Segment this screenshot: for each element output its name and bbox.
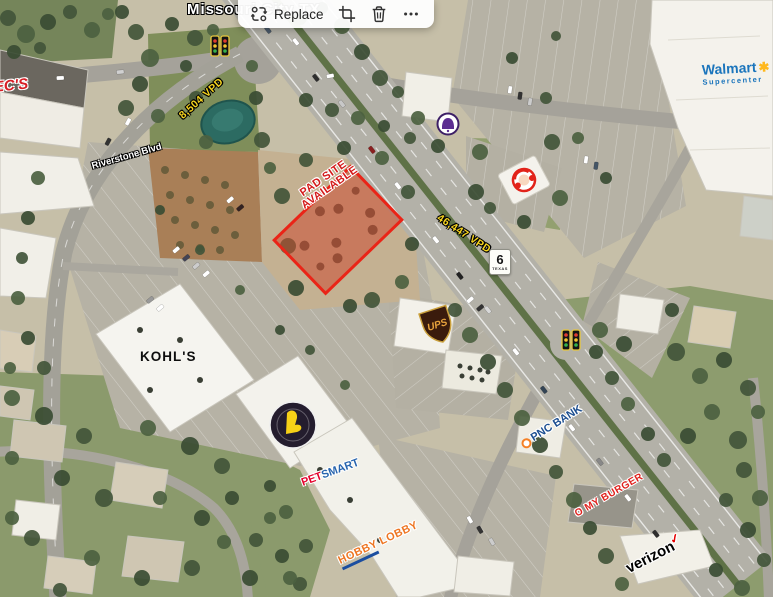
floating-image-toolbar: Replace xyxy=(238,0,434,28)
shield-state: TEXAS xyxy=(492,266,508,271)
crop-button[interactable] xyxy=(332,2,362,26)
more-options-button[interactable] xyxy=(396,2,426,26)
ellipsis-icon xyxy=(402,5,420,23)
planet-fitness-logo xyxy=(270,402,316,448)
taco-bell-logo xyxy=(438,114,459,135)
aerial-map-image[interactable]: UPS xyxy=(0,0,773,597)
aerial-map-graphic: UPS xyxy=(0,0,773,597)
walmart-logo: Walmart✱ Supercenter xyxy=(701,58,770,87)
swap-arrows-icon xyxy=(250,5,268,23)
walmart-spark-icon: ✱ xyxy=(758,59,770,75)
crop-icon xyxy=(338,5,356,23)
trash-icon xyxy=(370,5,388,23)
kohls-label: KOHL'S xyxy=(140,350,196,364)
shield-number: 6 xyxy=(496,253,503,266)
replace-label: Replace xyxy=(274,7,324,22)
delete-button[interactable] xyxy=(364,2,394,26)
replace-image-button[interactable]: Replace xyxy=(244,2,330,26)
texas-highway-6-shield: 6 TEXAS xyxy=(489,249,511,275)
